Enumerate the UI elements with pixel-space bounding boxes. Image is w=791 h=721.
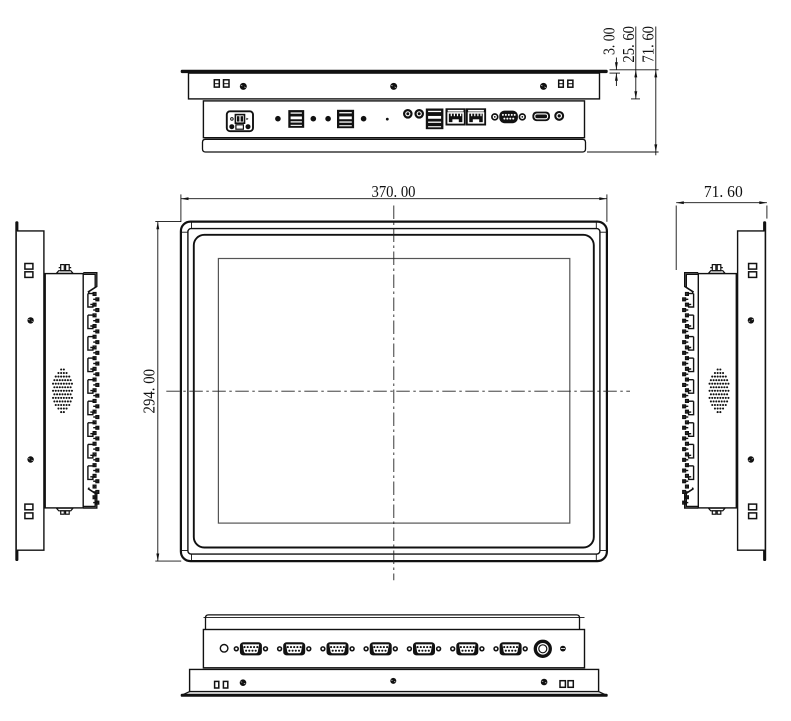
svg-text:294. 00: 294. 00 bbox=[140, 369, 159, 414]
svg-text:71. 60: 71. 60 bbox=[704, 182, 743, 201]
svg-text:71. 60: 71. 60 bbox=[639, 26, 658, 63]
svg-text:3. 00: 3. 00 bbox=[599, 27, 618, 55]
svg-text:25. 60: 25. 60 bbox=[619, 26, 638, 63]
svg-text:370. 00: 370. 00 bbox=[372, 182, 416, 201]
